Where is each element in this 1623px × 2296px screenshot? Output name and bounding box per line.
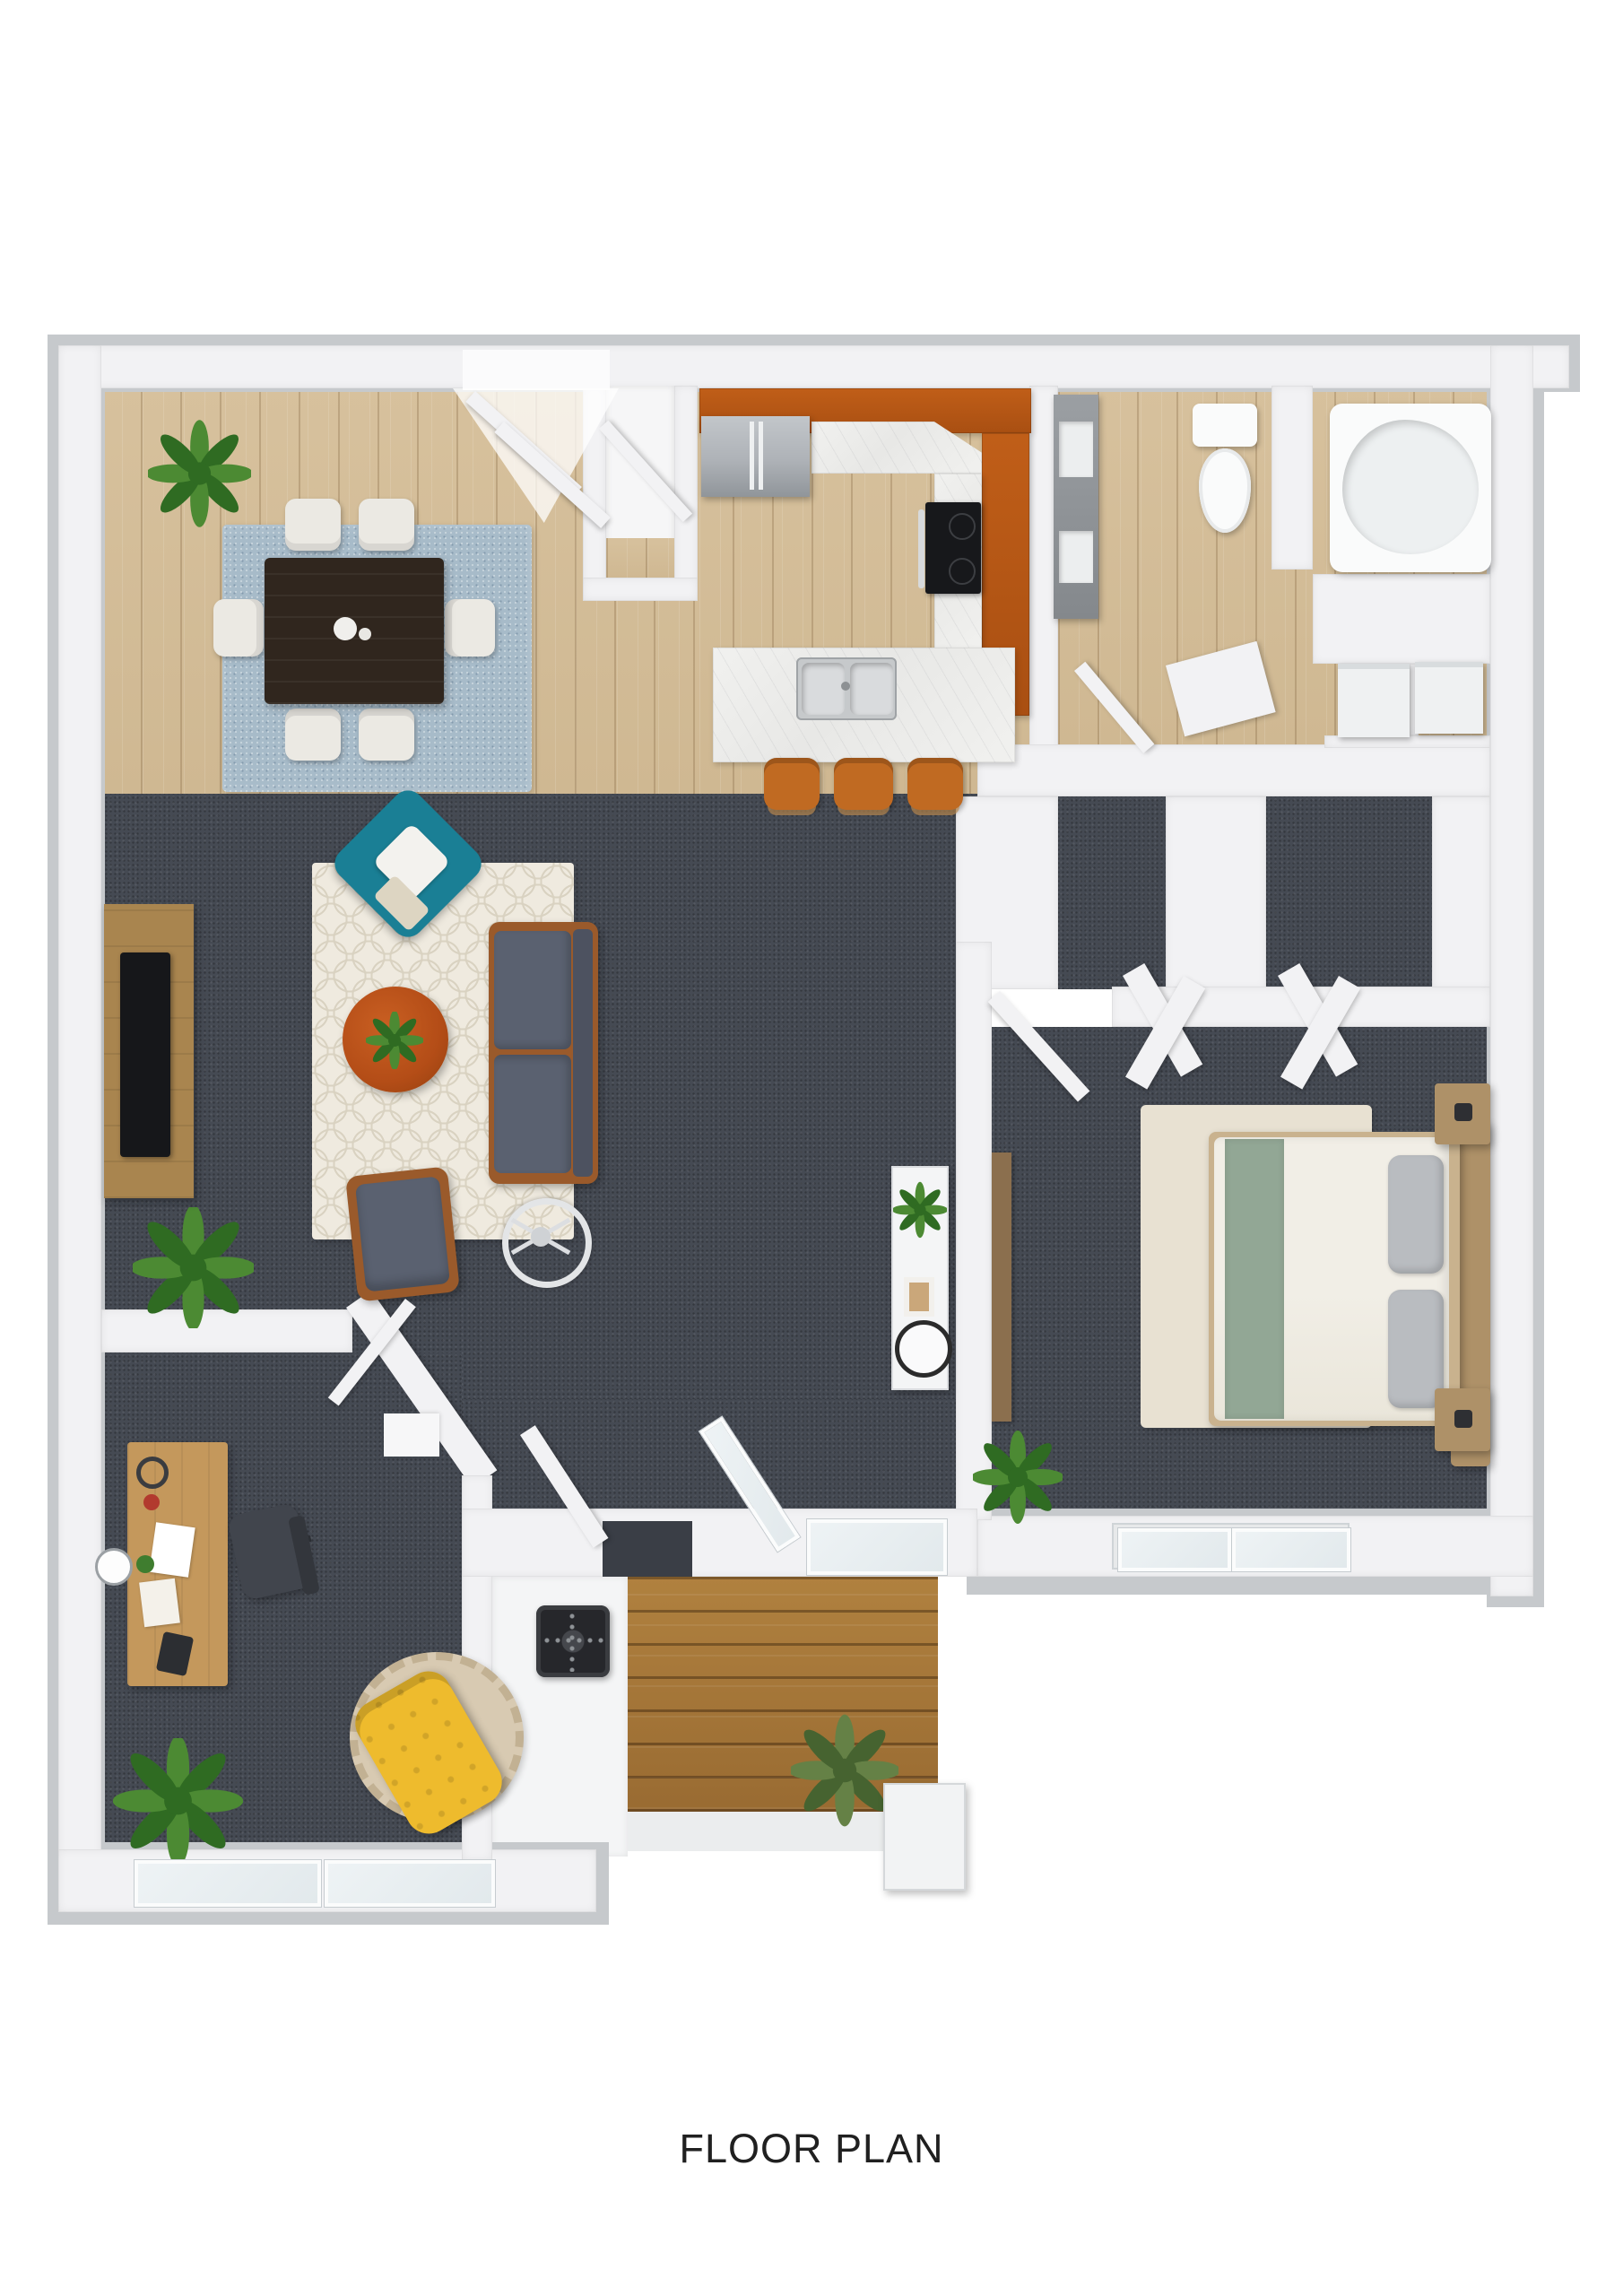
coffee-table-plant [366,1012,423,1069]
patio-door-opening [603,1521,692,1577]
wall-bath-closet-band [977,744,1490,796]
stove-burner [949,513,976,540]
bedroom-window-pane [1118,1528,1231,1571]
office-window-pane [325,1860,495,1907]
entry-closet-wall-right [674,386,698,601]
desk-lamp [136,1457,169,1489]
armchair-cushion [355,1176,450,1291]
deck-step [883,1783,966,1891]
dining-plant [148,420,251,527]
floor-closet-cell-right [1266,796,1432,989]
tower-shelf [1059,422,1093,477]
sink-faucet [841,682,850,691]
sink-basin-right [850,663,893,715]
dining-chair [359,499,414,551]
office-palm-plant [113,1738,243,1864]
floor-living-upper [101,794,1058,942]
deck-plant [791,1693,898,1848]
tv [120,952,170,1157]
plan-title: FLOOR PLAN [0,2126,1623,2172]
bed-pillow [1388,1155,1444,1274]
office-window-pane [135,1860,321,1907]
bar-stool [834,758,893,810]
toilet-tank [1193,404,1257,447]
grill-knobs [542,1611,604,1672]
dining-chair [285,499,341,551]
utility-appliance [1338,664,1410,737]
entry-closet-floor-wood [606,538,674,578]
floor-plan-canvas: FLOOR PLAN [0,0,1623,2296]
utility-appliance [1415,662,1483,734]
refrigerator-handles [750,422,754,490]
sink-basin-left [802,663,845,715]
stove-burner [949,558,976,585]
console-plant [893,1171,947,1248]
dining-chair [285,709,341,761]
oven-handle [918,509,924,588]
photo-frame [904,1277,934,1317]
wall-left [58,345,101,1912]
refrigerator [701,416,810,497]
bar-stool [907,758,963,810]
sofa-cushion [494,1055,571,1173]
living-palm-plant [133,1207,254,1328]
patio-fixed-glass [807,1519,947,1575]
nightstand-lamp [1454,1410,1472,1428]
wall-top [58,345,1569,388]
wall-closet-cells-right [1432,796,1490,989]
wall-bath-stub [1271,386,1313,570]
sofa-cushion [494,931,571,1049]
wall-bath-niche-block [1313,574,1490,664]
bed-green-runner [1225,1139,1284,1419]
entry-closet-wall-bottom [583,578,698,601]
table-centerpiece [334,617,357,640]
nightstand-lamp [1454,1103,1472,1121]
dining-chair [359,709,414,761]
office-door-mat [384,1413,439,1457]
entry-doorway [463,350,610,390]
wall-right [1490,345,1533,1596]
desk-mug [143,1494,160,1510]
wall-clock [95,1548,133,1586]
floor-lamp-shade [531,1227,551,1247]
dining-chair [213,599,264,657]
wall-closet-cells-mid [1166,796,1266,989]
bar-stool [764,758,820,810]
bedroom-window-pane [1232,1528,1350,1571]
desk-paper [139,1578,180,1628]
wall-niche-bottom [1324,735,1490,748]
desk-plant [136,1555,154,1573]
tower-shelf [1059,531,1093,583]
bedroom-plant [973,1410,1063,1544]
desk-paper [149,1522,195,1578]
sofa-back [573,929,593,1177]
floor-closet-cell-left [1058,796,1166,989]
bedroom-dresser [992,1152,1011,1422]
round-mirror [895,1320,952,1378]
dining-chair [445,599,495,657]
